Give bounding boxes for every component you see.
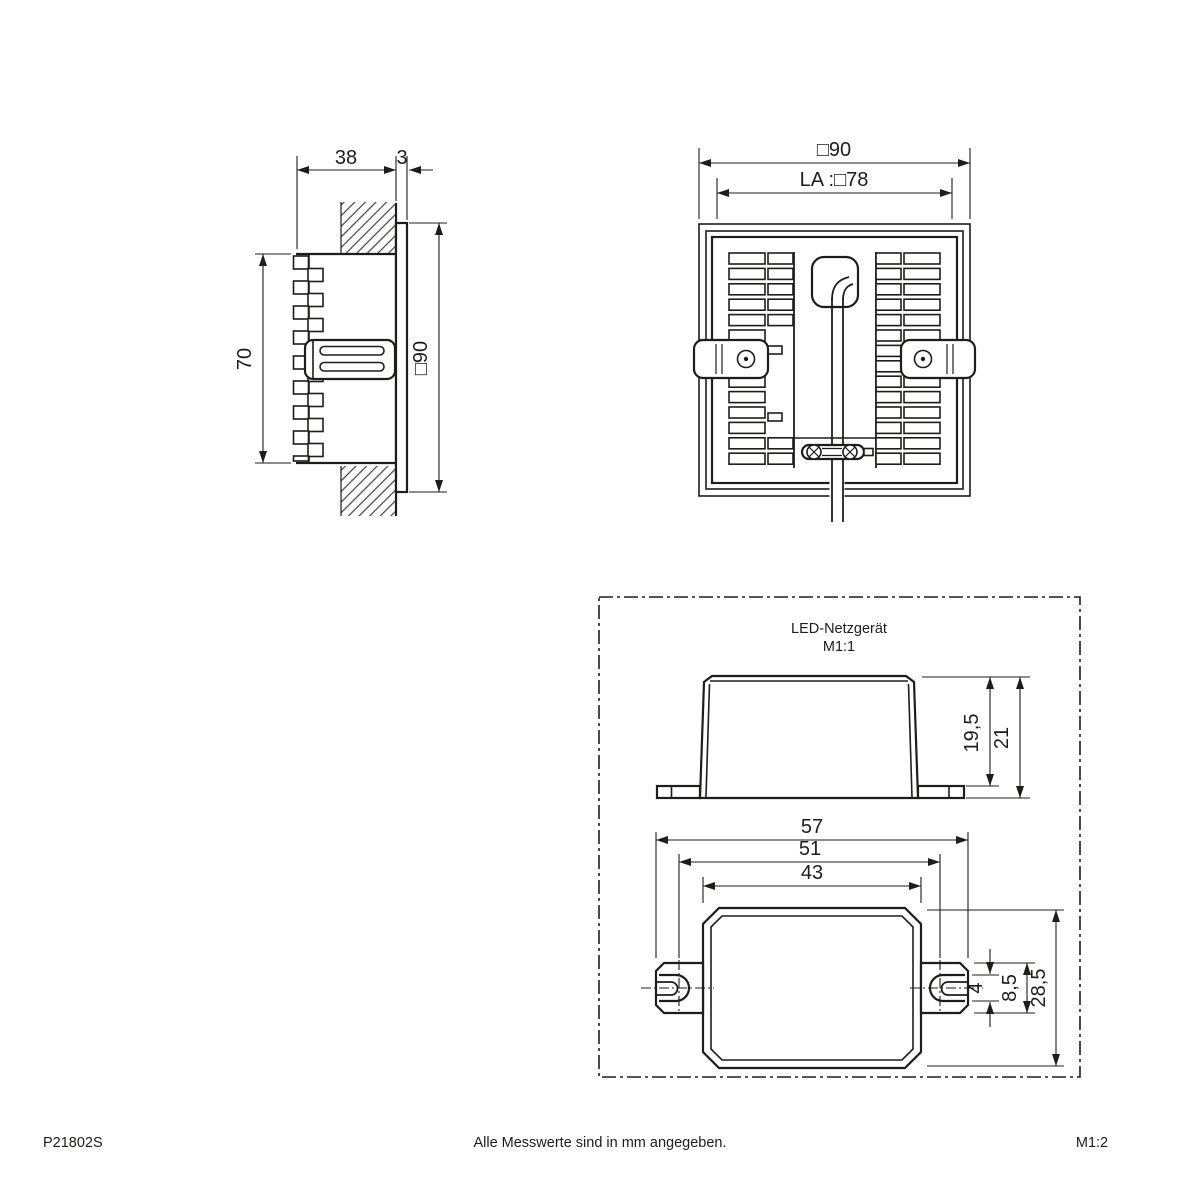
heatsink-fin (904, 315, 940, 326)
heatsink-fin (308, 319, 323, 332)
heatsink-fin (768, 453, 793, 464)
heatsink-fin (904, 268, 940, 279)
dim-housing-height: 70 (234, 348, 256, 370)
heatsink-fin (729, 392, 765, 403)
heatsink-fin (768, 253, 793, 264)
title-block: P21802S Alle Messwerte sind in mm angege… (43, 1135, 1108, 1151)
units-note: Alle Messwerte sind in mm angegeben. (473, 1135, 726, 1151)
heatsink-fin (308, 444, 323, 457)
heatsink-fin (729, 284, 765, 295)
clamp-screw (843, 445, 857, 459)
psu-detail: LED-Netzgerät M1:1 19,5 21 (599, 597, 1080, 1077)
dim-frame-size-side: □90 (410, 341, 432, 375)
psu-side-elevation: 19,5 21 (657, 676, 1030, 798)
dim-recess-depth: 38 (335, 147, 357, 169)
clamp-tab (864, 449, 873, 456)
heatsink-fin (876, 392, 901, 403)
front-frame-bezel (396, 223, 407, 492)
heatsink-fin (876, 407, 901, 418)
heatsink-fin (904, 422, 940, 433)
psu-title: LED-Netzgerät (791, 621, 887, 637)
dim-psu-overall-height: 21 (991, 727, 1013, 749)
psu-flange-left (657, 786, 700, 798)
dim-psu-overall-length: 57 (801, 816, 823, 838)
heatsink-fin (308, 269, 323, 282)
dim-psu-body-height: 19,5 (961, 714, 983, 753)
clip-slot (320, 347, 384, 356)
heatsink-fin (294, 406, 309, 419)
supply-cable (830, 277, 854, 522)
heatsink-fin (904, 253, 940, 264)
dim-cutout: LA :□78 (800, 169, 869, 191)
side-view-dimensions: 38 3 70 □90 (234, 147, 447, 492)
part-number: P21802S (43, 1135, 103, 1151)
heatsink-fin (768, 315, 793, 326)
psu-plan-view: 57 51 43 4 8,5 28,5 (641, 816, 1064, 1068)
heatsink-fin (876, 345, 901, 356)
heatsink-fin (294, 281, 309, 294)
rear-view: □90 LA :□78 (694, 139, 975, 522)
heatsink-fin (876, 438, 901, 449)
heatsink-fin (294, 256, 309, 269)
heatsink-fin (294, 431, 309, 444)
heatsink-fin (729, 407, 765, 418)
heatsink-fin (904, 407, 940, 418)
heatsink-fin (729, 438, 765, 449)
heatsink-fin (904, 453, 940, 464)
heatsink-fin (904, 392, 940, 403)
heatsink-fin (729, 453, 765, 464)
heatsink-fin (876, 253, 901, 264)
sheet-scale: M1:2 (1076, 1135, 1108, 1151)
heatsink-fin (876, 422, 901, 433)
heatsink-fin (876, 315, 901, 326)
rear-view-dimensions: □90 LA :□78 (699, 139, 970, 219)
psu-body-plan (703, 908, 921, 1068)
heatsink-fin (768, 299, 793, 310)
heatsink-fin (876, 361, 901, 372)
heatsink-fin (294, 456, 309, 461)
dim-psu-slot-width: 4 (965, 982, 987, 993)
heatsink-fin (729, 253, 765, 264)
heatsink-fin (308, 294, 323, 307)
side-section-view: 38 3 70 □90 (234, 147, 447, 516)
heatsink-fin (876, 268, 901, 279)
heatsink-fin (876, 376, 901, 387)
heatsink-fin (729, 422, 765, 433)
heatsink-fin (729, 268, 765, 279)
heatsink-fin (876, 299, 901, 310)
heatsink-fin (876, 330, 901, 341)
heatsink-fin (729, 299, 765, 310)
heatsink-tab (768, 346, 782, 354)
technical-drawing: 38 3 70 □90 (0, 0, 1200, 1200)
heatsink-fin (768, 284, 793, 295)
heatsink-fin (768, 268, 793, 279)
heatsink-fin (904, 438, 940, 449)
dim-psu-body-width: 28,5 (1028, 969, 1050, 1008)
mounting-spring-clip-side (305, 340, 395, 379)
dim-psu-bracket-height: 8,5 (999, 974, 1021, 1002)
psu-body-side (700, 676, 918, 798)
heatsink-fin (294, 381, 309, 394)
dim-psu-hole-spacing: 51 (799, 838, 821, 860)
mounting-spring-clip-right (901, 340, 975, 378)
heatsink-fin (904, 299, 940, 310)
clip-slot (320, 363, 384, 372)
drawing-sheet: 38 3 70 □90 (0, 0, 1200, 1200)
dim-frame-size-rear: □90 (817, 139, 851, 161)
dim-psu-body-length: 43 (801, 862, 823, 884)
heatsink-fin (729, 315, 765, 326)
psu-flange-right (918, 786, 964, 798)
heatsink-fin (308, 419, 323, 432)
cable-opening (812, 257, 858, 307)
heatsink-fin (876, 453, 901, 464)
heatsink-fin (294, 306, 309, 319)
cable-clamp (794, 438, 876, 459)
dim-frame-thickness: 3 (396, 147, 407, 169)
heatsink-fin (768, 438, 793, 449)
mounting-spring-clip-left (694, 340, 768, 378)
psu-scale: M1:1 (823, 639, 855, 655)
heatsink-fin (904, 284, 940, 295)
heatsink-fin (308, 394, 323, 407)
clamp-screw (807, 445, 821, 459)
heatsink-tab (768, 413, 782, 421)
heatsink-fin (876, 284, 901, 295)
